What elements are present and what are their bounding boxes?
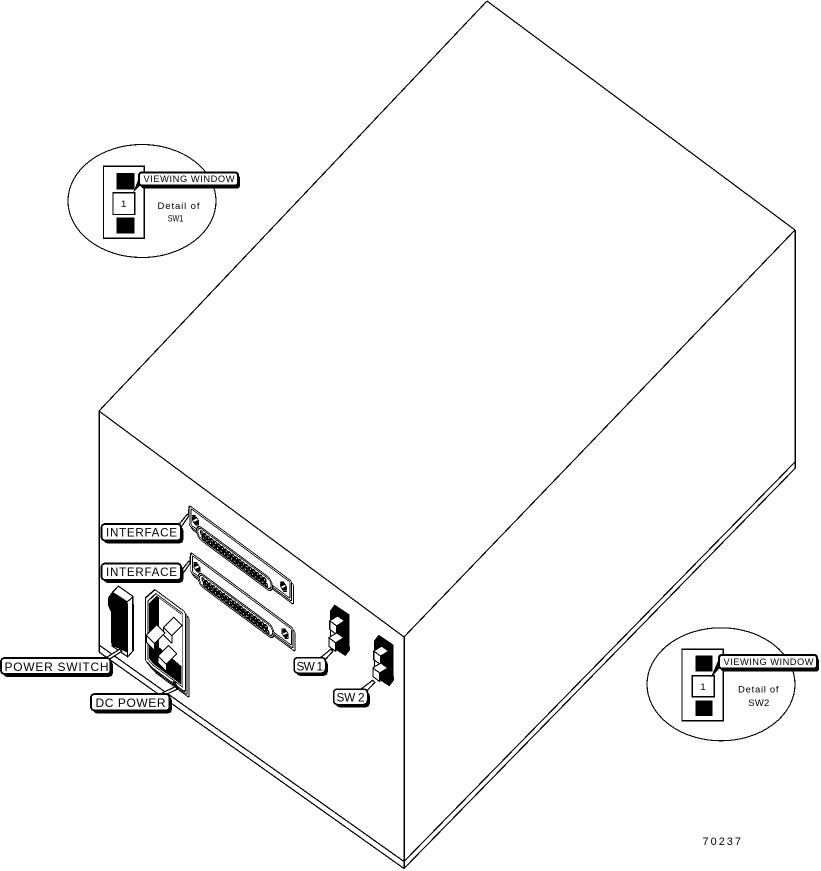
svg-text:INTERFACE: INTERFACE	[106, 566, 177, 579]
svg-text:DC POWER: DC POWER	[96, 696, 166, 710]
svg-text:VIEWING WINDOW: VIEWING WINDOW	[144, 174, 235, 184]
svg-text:SW1: SW1	[168, 213, 184, 223]
svg-text:1: 1	[121, 199, 126, 210]
svg-text:Detail of: Detail of	[158, 201, 200, 212]
svg-text:Detail of: Detail of	[738, 684, 779, 695]
svg-text:POWER SWITCH: POWER SWITCH	[5, 660, 109, 674]
svg-text:70237: 70237	[703, 836, 742, 848]
svg-text:1: 1	[700, 682, 705, 693]
svg-text:SW 1: SW 1	[297, 660, 324, 674]
svg-text:INTERFACE: INTERFACE	[106, 526, 177, 539]
svg-text:SW2: SW2	[748, 698, 769, 709]
svg-text:SW 2: SW 2	[337, 690, 365, 704]
svg-text:VIEWING WINDOW: VIEWING WINDOW	[724, 657, 814, 667]
